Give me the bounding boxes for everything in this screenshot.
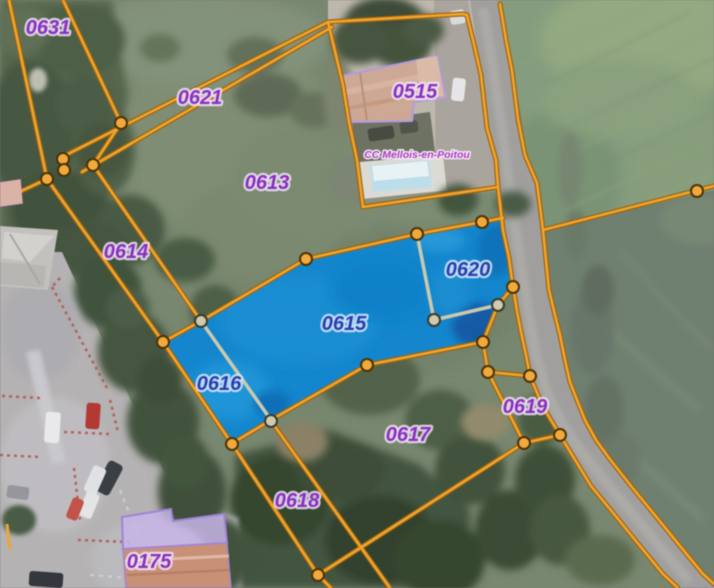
svg-text:0619: 0619 [503, 396, 548, 418]
svg-text:0614: 0614 [104, 241, 149, 263]
svg-text:0617: 0617 [386, 424, 431, 446]
svg-text:0631: 0631 [26, 17, 71, 39]
svg-text:0613: 0613 [245, 172, 290, 194]
svg-text:0175: 0175 [127, 551, 172, 573]
svg-text:0618: 0618 [275, 490, 320, 512]
svg-text:0515: 0515 [393, 81, 438, 103]
svg-text:CC Mellois-en-Poitou: CC Mellois-en-Poitou [364, 149, 470, 161]
svg-text:0620: 0620 [446, 259, 491, 281]
svg-text:0616: 0616 [197, 373, 242, 395]
svg-text:0615: 0615 [322, 313, 367, 335]
svg-text:0621: 0621 [178, 87, 223, 109]
